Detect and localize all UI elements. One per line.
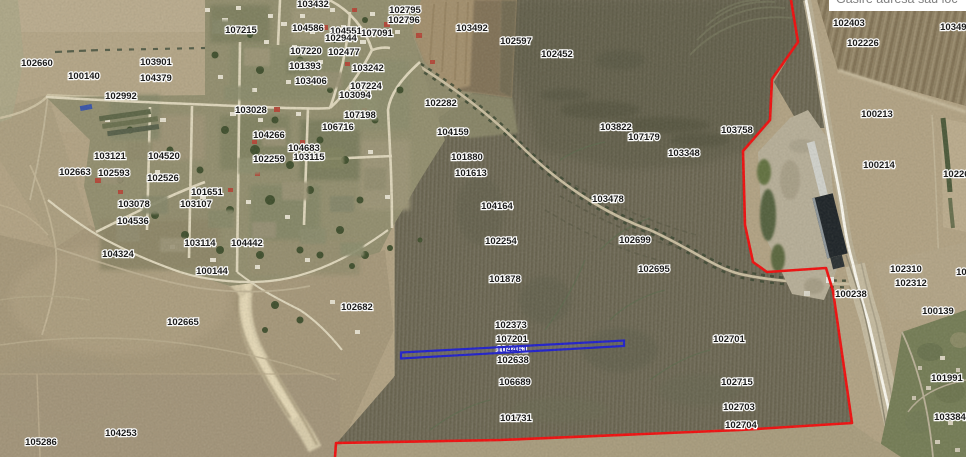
svg-text:Găsire adresă sau loc: Găsire adresă sau loc [836, 0, 958, 6]
